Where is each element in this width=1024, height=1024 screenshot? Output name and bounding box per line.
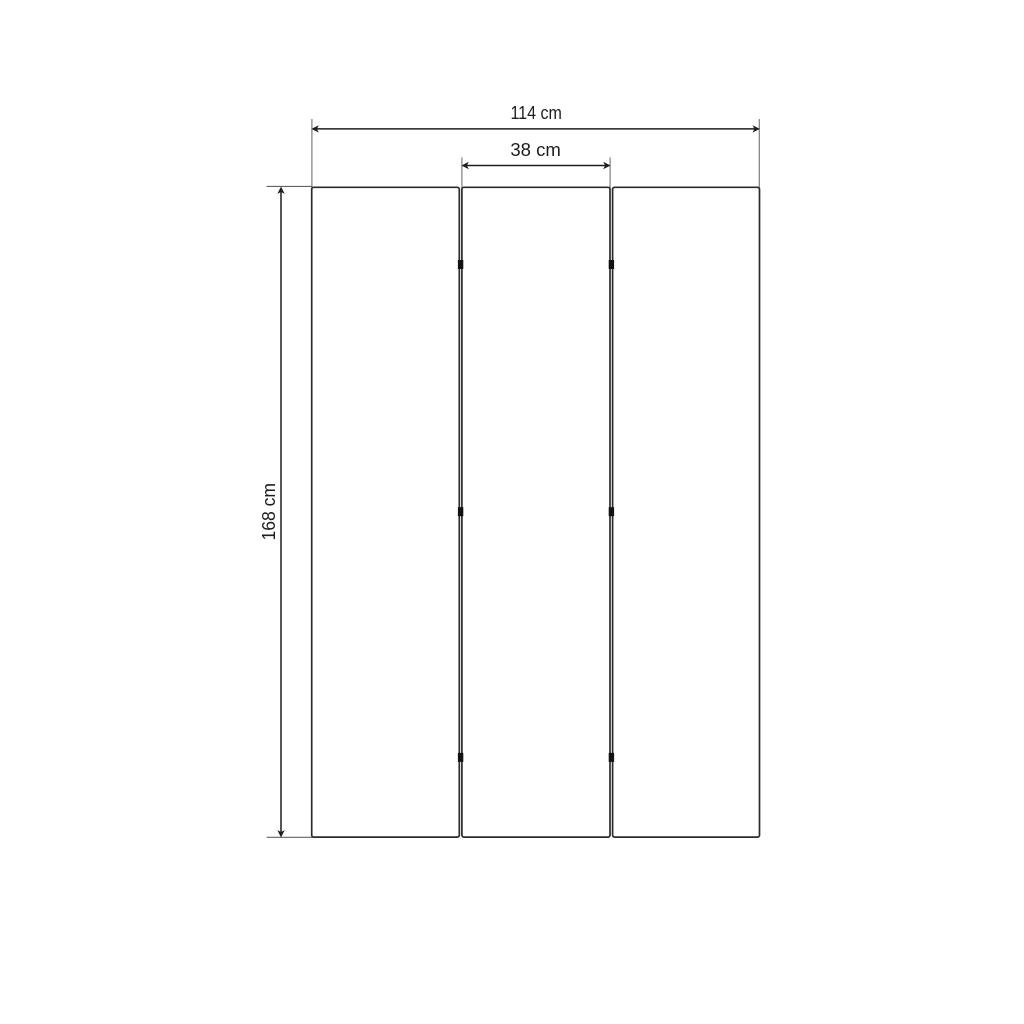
svg-text:168 cm: 168 cm: [258, 483, 279, 541]
svg-text:38 cm: 38 cm: [510, 139, 561, 160]
svg-text:114 cm: 114 cm: [510, 102, 562, 123]
